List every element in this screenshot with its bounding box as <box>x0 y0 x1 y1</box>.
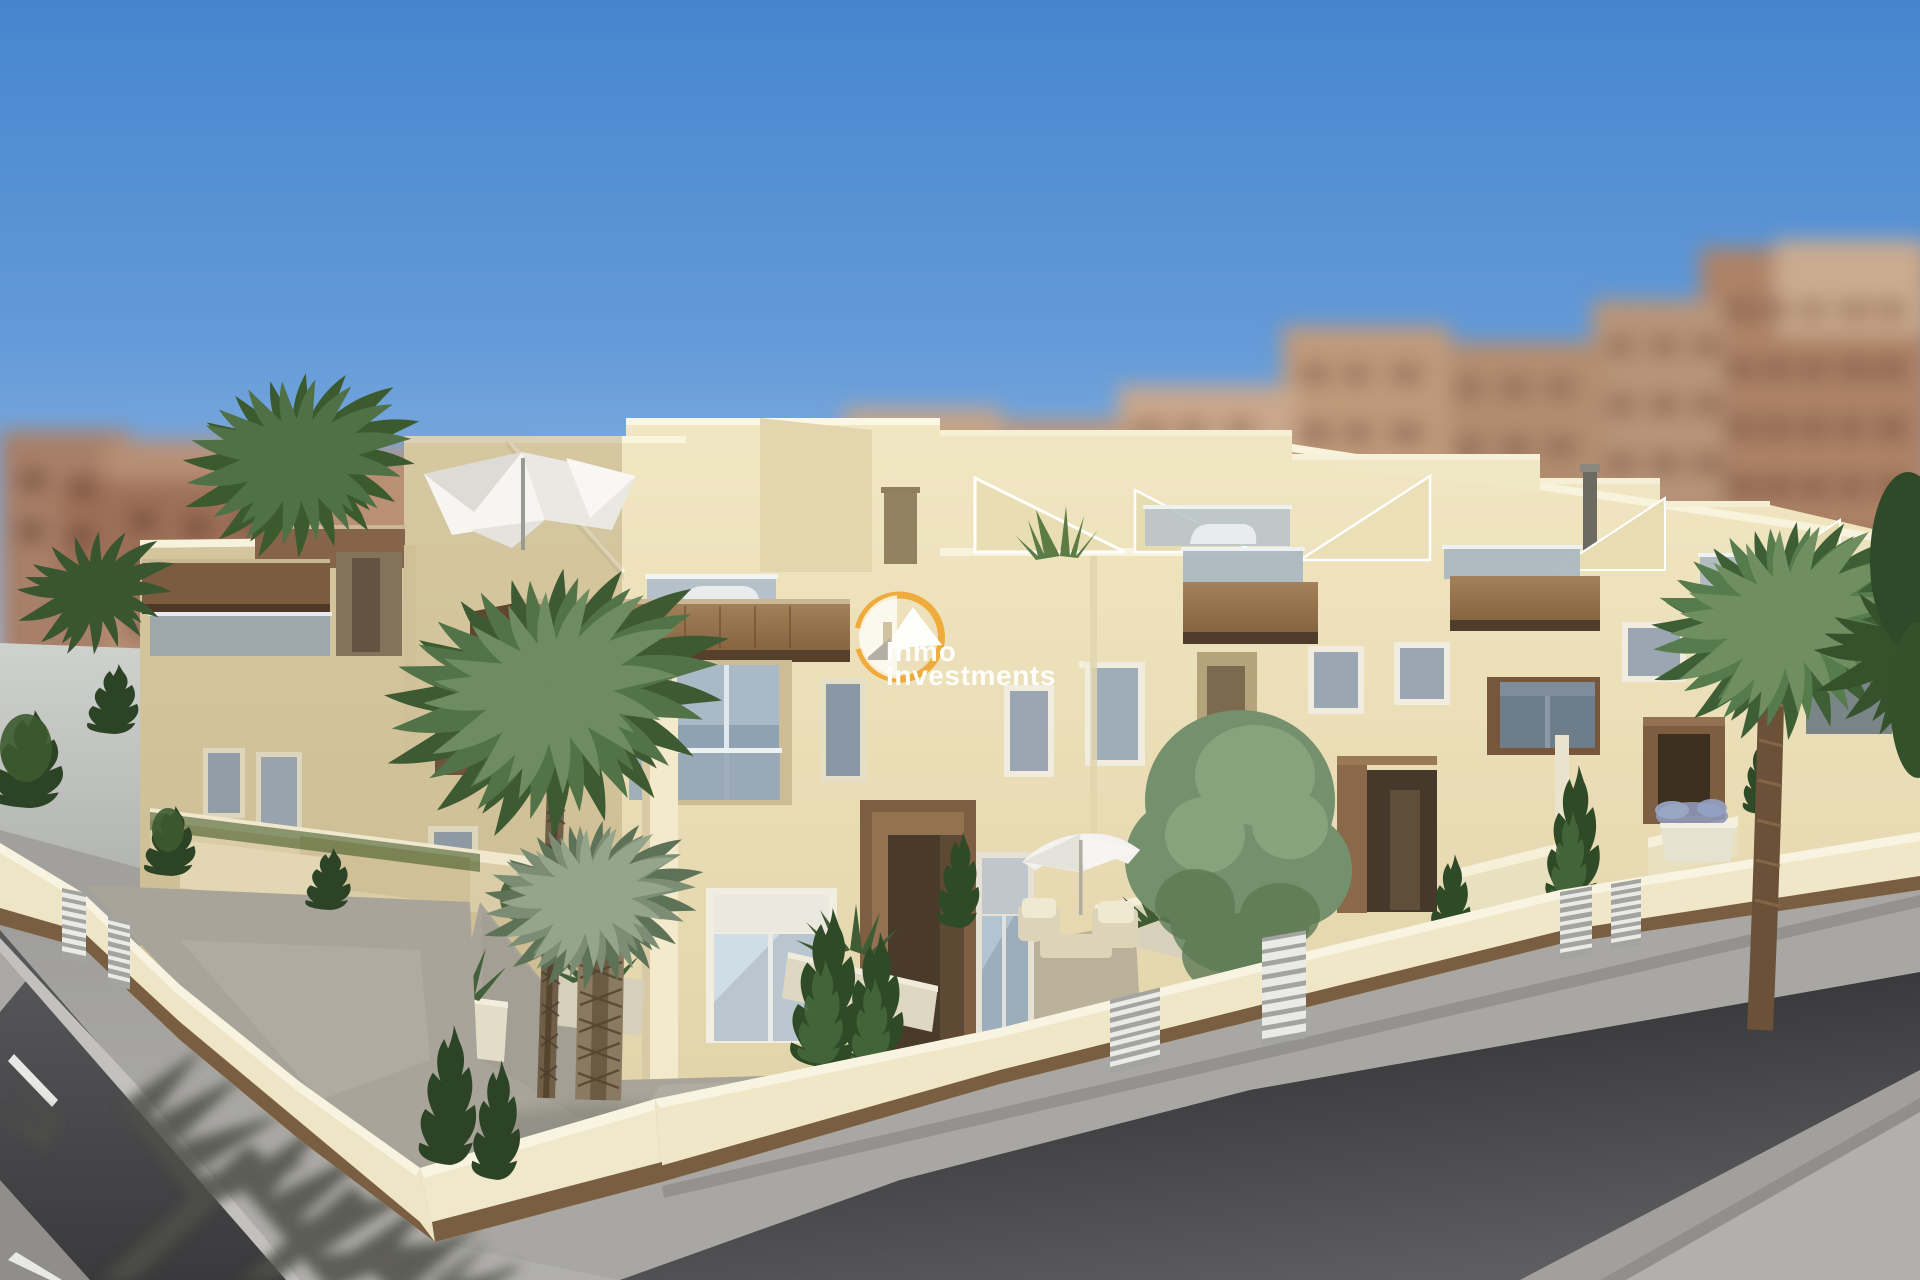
svg-text:®: ® <box>1078 660 1086 671</box>
svg-text:Investments: Investments <box>886 660 1056 691</box>
